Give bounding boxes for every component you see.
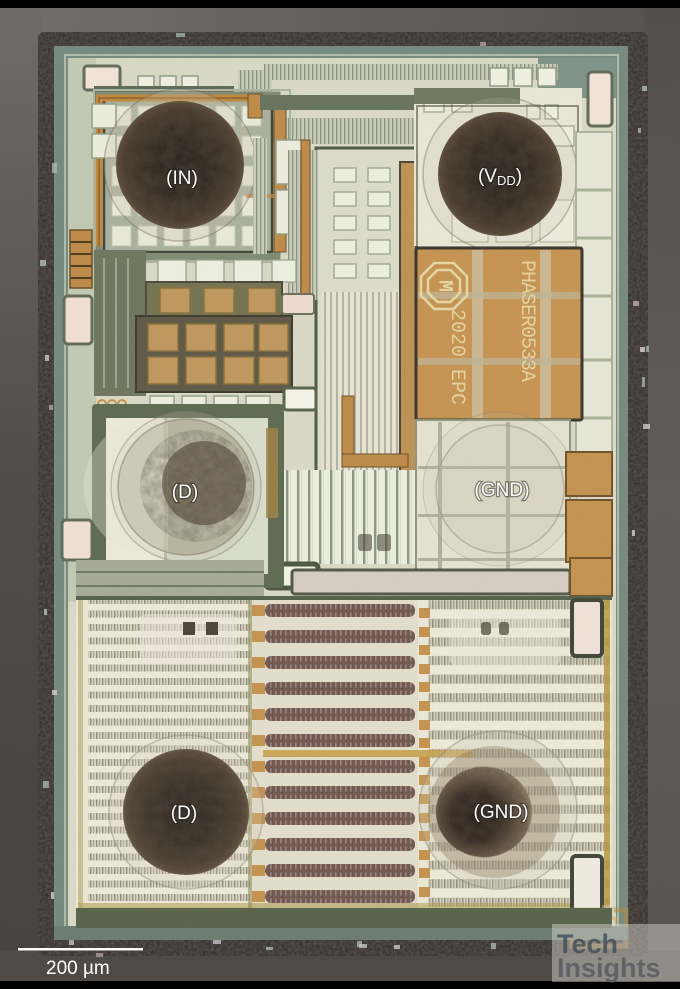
- svg-text:200 µm: 200 µm: [46, 958, 110, 979]
- svg-text:Insights: Insights: [557, 953, 661, 983]
